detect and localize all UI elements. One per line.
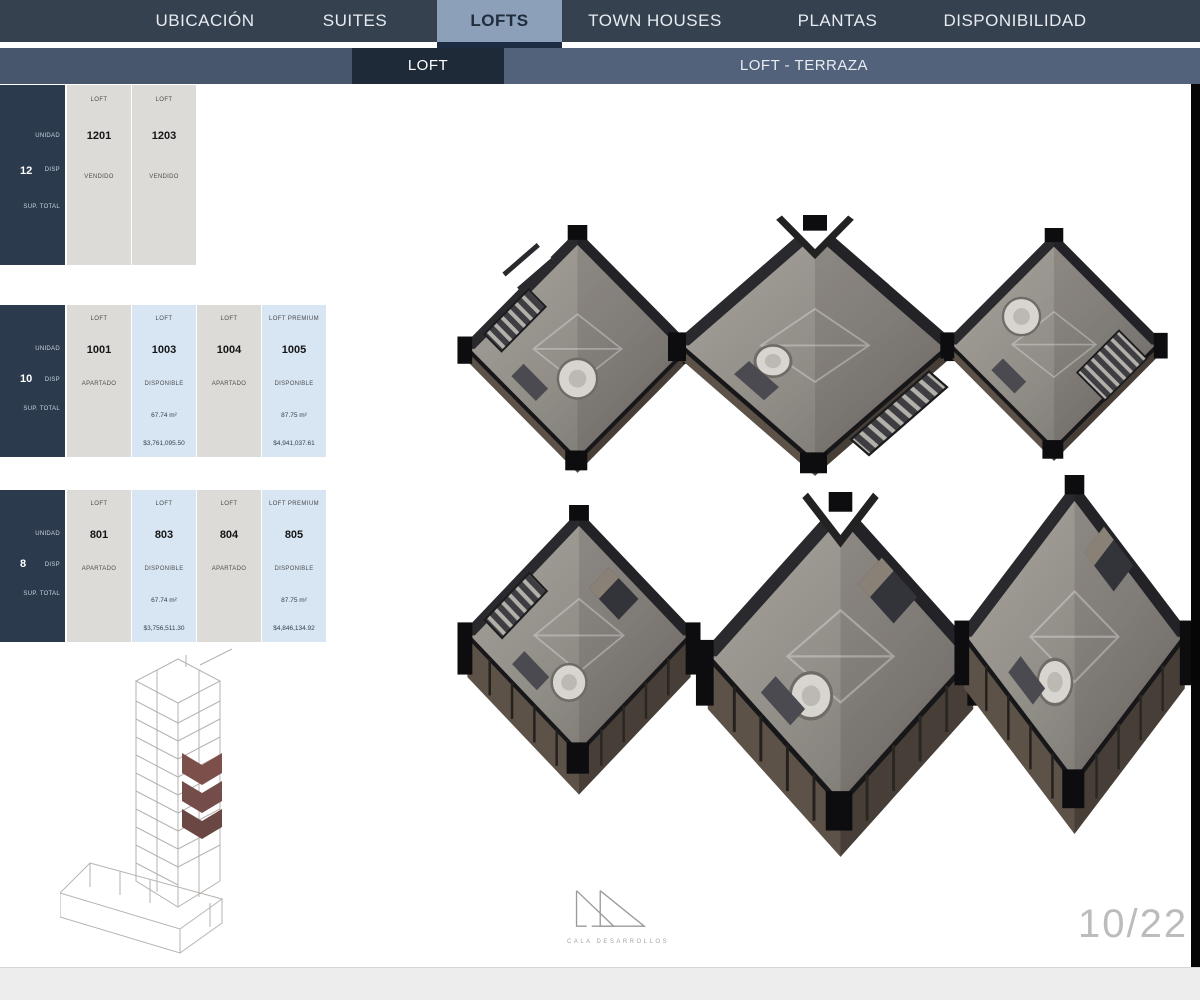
row-label-disp: DISP — [45, 562, 60, 568]
unit-number: 1001 — [67, 333, 131, 366]
floor-table-10: 10 UNIDAD DISP SUP. TOTAL LOFT 1001 APAR… — [0, 305, 327, 457]
unit-number: 1004 — [197, 333, 261, 366]
logo-triangles-icon — [563, 885, 673, 937]
unit-area — [197, 586, 261, 614]
unit-type-label: LOFT — [132, 85, 196, 115]
right-edge-strip — [1191, 84, 1200, 967]
unit-column: LOFT 1201 VENDIDO — [67, 85, 131, 265]
unit-price — [132, 231, 196, 265]
page-indicator: 10/22 — [1078, 902, 1188, 947]
unit-type-label: LOFT — [132, 305, 196, 333]
unit-price — [67, 429, 131, 457]
loft-floorplan-render-1 — [455, 225, 700, 510]
unit-number: 801 — [67, 518, 131, 551]
developer-logo: CALA DESARROLLOS — [548, 885, 688, 963]
unit-number: 1203 — [132, 115, 196, 157]
row-label-unidad: UNIDAD — [35, 346, 60, 352]
unit-column: LOFT PREMIUM 1005 DISPONIBLE 87.75 m² $4… — [262, 305, 326, 457]
unit-price — [197, 614, 261, 642]
tab-plantas[interactable]: PLANTAS — [770, 0, 905, 42]
unit-price: $3,756,511.30 — [132, 614, 196, 642]
floor-number: 10 — [20, 373, 32, 385]
building-isometric-illustration — [60, 645, 320, 965]
unit-price — [67, 231, 131, 265]
unit-type-label: LOFT PREMIUM — [262, 490, 326, 518]
floor-number: 12 — [20, 165, 32, 177]
unit-status: DISPONIBLE — [132, 551, 196, 586]
unit-area — [197, 401, 261, 429]
subtab-loft[interactable]: LOFT — [352, 48, 504, 84]
unit-status: DISPONIBLE — [132, 366, 196, 401]
unit-price — [197, 429, 261, 457]
unit-column: LOFT 1004 APARTADO — [197, 305, 261, 457]
unit-status: VENDIDO — [67, 157, 131, 197]
unit-type-label: LOFT — [197, 305, 261, 333]
presentation-slide: UBICACIÓN SUITES LOFTS TOWN HOUSES PLANT… — [0, 0, 1200, 1000]
row-label-sup-total: SUP. TOTAL — [23, 591, 60, 597]
unit-status: APARTADO — [197, 551, 261, 586]
tab-suites[interactable]: SUITES — [300, 0, 410, 42]
row-label-disp: DISP — [45, 377, 60, 383]
floor-table-sidebar: 10 UNIDAD DISP SUP. TOTAL — [0, 305, 65, 457]
unit-status: VENDIDO — [132, 157, 196, 197]
row-label-sup-total: SUP. TOTAL — [23, 406, 60, 412]
unit-type-label: LOFT — [67, 490, 131, 518]
unit-type-label: LOFT — [67, 85, 131, 115]
loft-floorplan-render-2 — [665, 215, 965, 515]
unit-status: APARTADO — [67, 366, 131, 401]
unit-area — [67, 401, 131, 429]
floor-table-8: 8 UNIDAD DISP SUP. TOTAL LOFT 801 APARTA… — [0, 490, 327, 642]
unit-price: $3,761,095.50 — [132, 429, 196, 457]
row-label-disp: DISP — [45, 167, 60, 173]
floor-table-sidebar: 12 UNIDAD DISP SUP. TOTAL — [0, 85, 65, 265]
unit-area: 87.75 m² — [262, 401, 326, 429]
unit-area: 67.74 m² — [132, 401, 196, 429]
unit-status: APARTADO — [197, 366, 261, 401]
unit-area: 87.75 m² — [262, 586, 326, 614]
unit-column: LOFT 1001 APARTADO — [67, 305, 131, 457]
tab-ubicacion[interactable]: UBICACIÓN — [140, 0, 270, 42]
unit-column: LOFT 1203 VENDIDO — [132, 85, 196, 265]
unit-type-label: LOFT — [132, 490, 196, 518]
unit-number: 1005 — [262, 333, 326, 366]
unit-area — [67, 197, 131, 231]
unit-number: 805 — [262, 518, 326, 551]
unit-type-label: LOFT PREMIUM — [262, 305, 326, 333]
unit-type-label: LOFT — [67, 305, 131, 333]
tab-lofts[interactable]: LOFTS — [437, 0, 562, 42]
floor-table-12: 12 UNIDAD DISP SUP. TOTAL LOFT 1201 VEND… — [0, 85, 197, 265]
unit-area: 67.74 m² — [132, 586, 196, 614]
unit-number: 803 — [132, 518, 196, 551]
main-nav: UBICACIÓN SUITES LOFTS TOWN HOUSES PLANT… — [0, 0, 1200, 42]
loft-floorplan-render-5 — [693, 492, 988, 870]
unit-price: $4,941,037.61 — [262, 429, 326, 457]
sub-nav: LOFT LOFT - TERRAZA — [0, 48, 1200, 84]
unit-number: 804 — [197, 518, 261, 551]
unit-column: LOFT 801 APARTADO — [67, 490, 131, 642]
loft-floorplan-render-3 — [938, 228, 1170, 496]
loft-floorplan-render-6 — [952, 475, 1197, 847]
row-label-unidad: UNIDAD — [35, 133, 60, 139]
subtab-loft-terraza[interactable]: LOFT - TERRAZA — [504, 48, 1104, 84]
highlighted-loft-floors — [182, 753, 222, 839]
unit-column: LOFT 804 APARTADO — [197, 490, 261, 642]
unit-column: LOFT 1003 DISPONIBLE 67.74 m² $3,761,095… — [132, 305, 196, 457]
unit-column: LOFT PREMIUM 805 DISPONIBLE 87.75 m² $4,… — [262, 490, 326, 642]
unit-area — [67, 586, 131, 614]
tab-town-houses[interactable]: TOWN HOUSES — [580, 0, 730, 42]
floor-number: 8 — [20, 558, 26, 570]
tab-disponibilidad[interactable]: DISPONIBILIDAD — [930, 0, 1100, 42]
unit-status: APARTADO — [67, 551, 131, 586]
bottom-strip — [0, 967, 1200, 1000]
unit-price: $4,846,134.92 — [262, 614, 326, 642]
unit-number: 1003 — [132, 333, 196, 366]
unit-status: DISPONIBLE — [262, 551, 326, 586]
unit-number: 1201 — [67, 115, 131, 157]
logo-text: CALA DESARROLLOS — [548, 939, 688, 945]
unit-type-label: LOFT — [197, 490, 261, 518]
floor-table-sidebar: 8 UNIDAD DISP SUP. TOTAL — [0, 490, 65, 642]
unit-area — [132, 197, 196, 231]
loft-floorplan-render-4 — [455, 505, 703, 805]
row-label-unidad: UNIDAD — [35, 531, 60, 537]
unit-price — [67, 614, 131, 642]
unit-column: LOFT 803 DISPONIBLE 67.74 m² $3,756,511.… — [132, 490, 196, 642]
unit-status: DISPONIBLE — [262, 366, 326, 401]
row-label-sup-total: SUP. TOTAL — [23, 204, 60, 210]
